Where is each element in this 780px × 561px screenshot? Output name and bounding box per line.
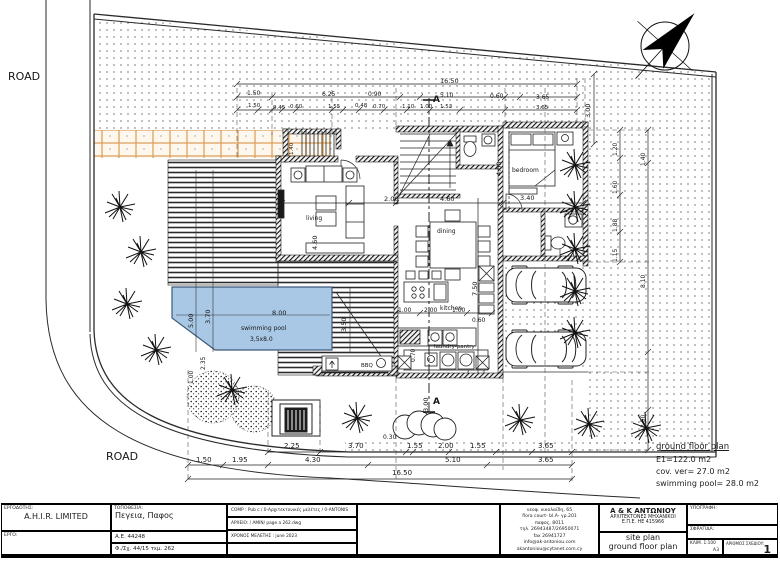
firm-name3: Ε.Π.Ε. ΗΕ 415966 bbox=[600, 520, 686, 525]
stamp-label: ΣΦΡΑΓΙΔΑ: bbox=[688, 526, 777, 532]
owner-label: ΕΡΓΟΔΟΤΗΣ: bbox=[2, 505, 110, 511]
title-block: ΕΡΓΟΔΟΤΗΣ: A.H.I.R. LIMITED ΕΡΓΟ: ΤΟΠΟΘΕ… bbox=[1, 503, 778, 558]
studytime-cell: ΧΡΟΝΟΣ ΜΕΛΕΤΗΣ : june 2023 bbox=[227, 530, 357, 543]
project-cell: ΕΡΓΟ: bbox=[1, 531, 111, 555]
owner-cell: ΕΡΓΟΔΟΤΗΣ: A.H.I.R. LIMITED bbox=[1, 504, 111, 531]
bedroom-furniture bbox=[509, 132, 573, 194]
stairs bbox=[400, 134, 456, 194]
firm-name-cell: Α & Κ ΑΝΤΩΝΙΟΥ ΑΡΧΙΤΕΚΤΟΝΕΣ ΜΗΧΑΝΙΚΟΙ Ε.… bbox=[599, 504, 687, 532]
reg1-cell: Α.Ε. 44248 bbox=[111, 531, 227, 543]
laundry-furniture bbox=[398, 350, 489, 370]
empty-row-cell bbox=[227, 543, 357, 555]
scale-cell: ΚΛΙΜ. 1:100 Α3 bbox=[687, 539, 723, 555]
meter-box bbox=[272, 400, 320, 436]
notes-line: E1=122.0 m2 bbox=[656, 454, 776, 466]
revision-cell bbox=[357, 504, 500, 555]
address-line: akantoniou@cytanet.com.cy bbox=[501, 547, 598, 553]
bushes bbox=[187, 371, 456, 440]
bbq-area bbox=[322, 356, 392, 371]
drawing-title-1: site plan bbox=[600, 533, 686, 542]
site-plan-drawing bbox=[0, 0, 780, 500]
living-furniture bbox=[278, 166, 364, 253]
firm-name: Α & Κ ΑΝΤΩΝΙΟΥ bbox=[600, 507, 686, 515]
notes-line: swimming pool= 28.0 m2 bbox=[656, 478, 776, 490]
notes-title: ground floor plan bbox=[656, 441, 776, 453]
area-notes: ground floor plan E1=122.0 m2 cov. ver= … bbox=[656, 441, 776, 489]
drawing-title-cell: site plan ground floor plan bbox=[599, 532, 687, 555]
firm-address-cell: νεοφ. νικολαϊδη, 65flora court- bl.A- γρ… bbox=[500, 504, 599, 555]
location-cell: ΤΟΠΟΘΕΣΙΑ: Πεγεια, Παφος bbox=[111, 504, 227, 531]
stamp-cell: ΣΦΡΑΓΙΔΑ: bbox=[687, 525, 778, 539]
comp-cell: COMP : Pub c / 0-Αρχιτεκτονικές μελέτες … bbox=[227, 504, 357, 517]
location-value: Πεγεια, Παφος bbox=[112, 511, 226, 520]
owner-name: A.H.I.R. LIMITED bbox=[2, 512, 110, 521]
scale-value: ΚΛΙΜ. 1:100 bbox=[688, 540, 722, 546]
notes-line: cov. ver= 27.0 m2 bbox=[656, 466, 776, 478]
reg2-cell: Φ./Σχ. 44/15 τεμ. 262 bbox=[111, 543, 227, 555]
drawing-sheet: ROADROADAAlivingbedroomdiningkitchenlaun… bbox=[0, 0, 780, 561]
signature-label: ΥΠΟΓΡΑΦΗ: bbox=[688, 505, 777, 511]
project-label: ΕΡΓΟ: bbox=[2, 532, 110, 538]
file-cell: ΑΡΧΕΙΟ: / AMIN/ page a 262.dwg bbox=[227, 517, 357, 530]
sheet-number-cell: ΑΡΙΘΜΟΣ ΣΧΕΔΙΟΥ: 1 bbox=[723, 539, 778, 555]
drawing-title-2: ground floor plan bbox=[600, 542, 686, 551]
signature-cell: ΥΠΟΓΡΑΦΗ: bbox=[687, 504, 778, 525]
paper-size: Α3 bbox=[688, 548, 722, 553]
